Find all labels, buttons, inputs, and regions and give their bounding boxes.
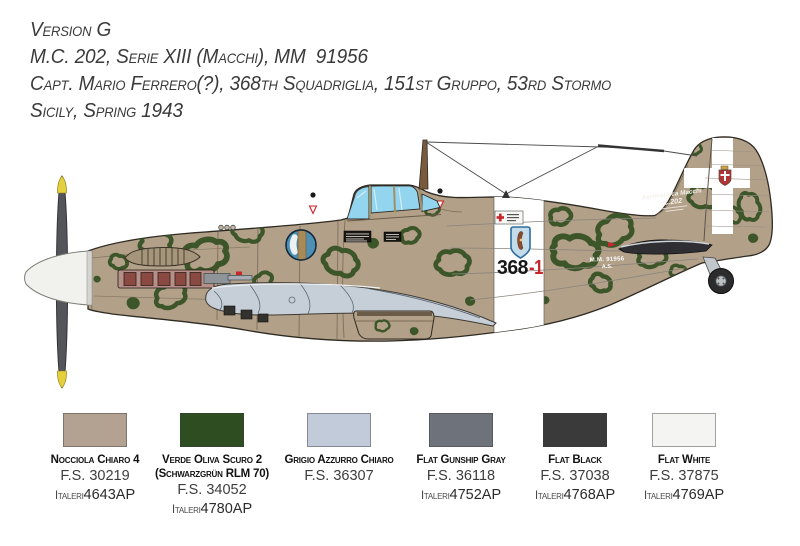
code-suffix: -1: [529, 257, 543, 279]
swatch-product-code: 4752AP: [450, 487, 502, 503]
intake-fairing: [125, 247, 200, 266]
band-stencil: [495, 211, 523, 224]
paint-swatch: Flat Gunship Gray F.S. 36118 Italeri4752…: [396, 405, 526, 505]
swatch-name: Grigio Azzurro Chiaro: [264, 453, 414, 467]
paint-color-chart: Nocciola Chiaro 4 F.S. 30219 Italeri4643…: [0, 405, 800, 546]
swatch-color-box: [180, 413, 244, 447]
antenna: [419, 140, 697, 198]
instruction-page: Version G M.C. 202, Serie XIII (Macchi),…: [0, 0, 800, 546]
swatch-brand: Italeri: [421, 488, 450, 502]
swatch-color-box: [543, 413, 607, 447]
swatch-color-box: [429, 413, 493, 447]
cowl-vents: [219, 225, 236, 230]
swatch-italeri-line: Italeri4752AP: [396, 486, 526, 505]
swatch-color-box: [63, 413, 127, 447]
swatch-color-box: [307, 413, 371, 447]
swatch-name: Flat Black: [515, 453, 635, 467]
swatch-brand: Italeri: [55, 488, 84, 502]
swatch-italeri-line: Italeri4768AP: [515, 486, 635, 505]
swatch-italeri-line: Italeri4769AP: [619, 486, 749, 505]
swatch-product-code: 4780AP: [201, 501, 253, 517]
swatch-italeri-line: Italeri4780AP: [136, 500, 288, 519]
squadron-code: 368 -1: [497, 257, 543, 279]
swatch-name: Flat Gunship Gray: [396, 453, 526, 467]
spinner: [25, 251, 90, 305]
serial-line2: A.S.: [602, 264, 613, 270]
paint-swatch: Flat Black F.S. 37038 Italeri4768AP: [515, 405, 635, 505]
paint-swatch: Flat White F.S. 37875 Italeri4769AP: [619, 405, 749, 505]
swatch-name: Flat White: [619, 453, 749, 467]
squadron-badge: [511, 227, 530, 258]
swatch-color-box: [652, 413, 716, 447]
tail-wheel: [703, 257, 734, 294]
swatch-fs-code: F.S. 36118: [396, 467, 526, 486]
unit-emblem: [286, 229, 316, 261]
tail-cross-horizontal: [684, 168, 750, 188]
swatch-brand: Italeri: [172, 502, 201, 516]
radiator: [354, 311, 434, 339]
swatch-brand: Italeri: [535, 488, 564, 502]
swatch-fs-code: F.S. 36307: [264, 467, 414, 486]
swatch-product-code: 4768AP: [564, 487, 616, 503]
swatch-brand: Italeri: [644, 488, 673, 502]
code-number: 368: [497, 257, 528, 279]
swatch-product-code: 4769AP: [673, 487, 725, 503]
swatch-product-code: 4643AP: [84, 487, 136, 503]
swatch-fs-code: F.S. 37875: [619, 467, 749, 486]
propeller: [25, 176, 93, 388]
paint-swatch: Grigio Azzurro Chiaro F.S. 36307: [264, 405, 414, 486]
serial-line1: M.M. 91956: [590, 256, 625, 263]
antenna-mast: [419, 140, 428, 189]
swatch-fs-code: F.S. 37038: [515, 467, 635, 486]
